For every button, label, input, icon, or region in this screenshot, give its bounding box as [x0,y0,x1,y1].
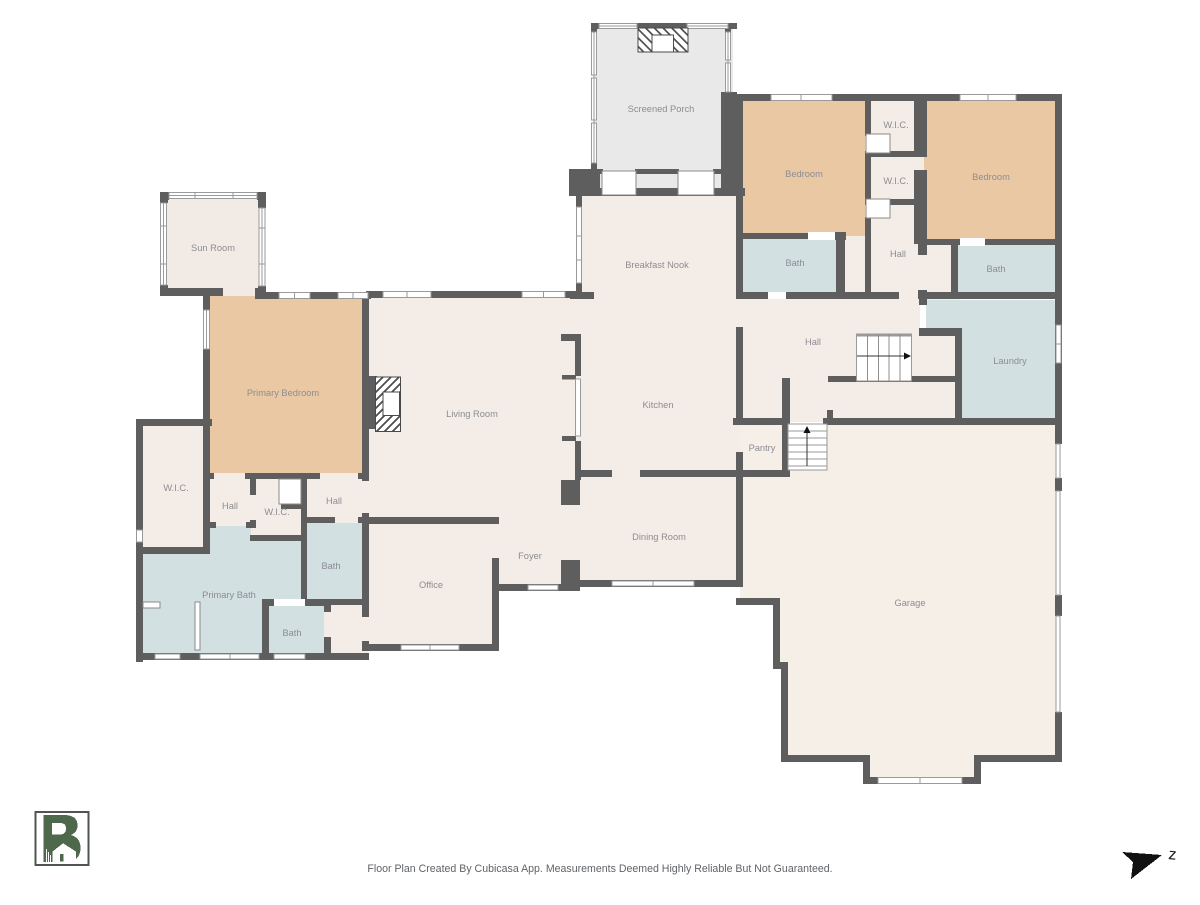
svg-text:Floor Plan Created By Cubicasa: Floor Plan Created By Cubicasa App. Meas… [367,863,832,875]
svg-text:Garage: Garage [894,598,925,608]
svg-text:Bath: Bath [282,628,301,638]
svg-text:Living Room: Living Room [446,409,498,419]
svg-text:Hall: Hall [805,337,821,347]
svg-text:Primary Bath: Primary Bath [202,590,256,600]
svg-text:Hall: Hall [326,496,342,506]
svg-text:Bath: Bath [785,258,804,268]
svg-text:W.I.C.: W.I.C. [264,507,289,517]
svg-text:W.I.C.: W.I.C. [163,483,188,493]
svg-text:Office: Office [419,580,443,590]
svg-text:Laundry: Laundry [993,356,1027,366]
svg-text:Bedroom: Bedroom [785,169,823,179]
svg-text:Kitchen: Kitchen [642,400,673,410]
svg-text:Pantry: Pantry [749,443,776,453]
svg-text:Breakfast Nook: Breakfast Nook [625,260,689,270]
svg-text:Primary Bedroom: Primary Bedroom [247,388,320,398]
svg-text:Bedroom: Bedroom [972,172,1010,182]
svg-text:Hall: Hall [890,249,906,259]
svg-text:Bath: Bath [986,264,1005,274]
svg-text:Bath: Bath [321,561,340,571]
svg-text:W.I.C.: W.I.C. [883,120,908,130]
svg-text:Screened Porch: Screened Porch [628,104,695,114]
svg-text:Hall: Hall [222,501,238,511]
svg-text:Sun Room: Sun Room [191,243,235,253]
svg-text:Dining Room: Dining Room [632,532,686,542]
svg-text:Foyer: Foyer [518,551,542,561]
svg-text:W.I.C.: W.I.C. [883,176,908,186]
